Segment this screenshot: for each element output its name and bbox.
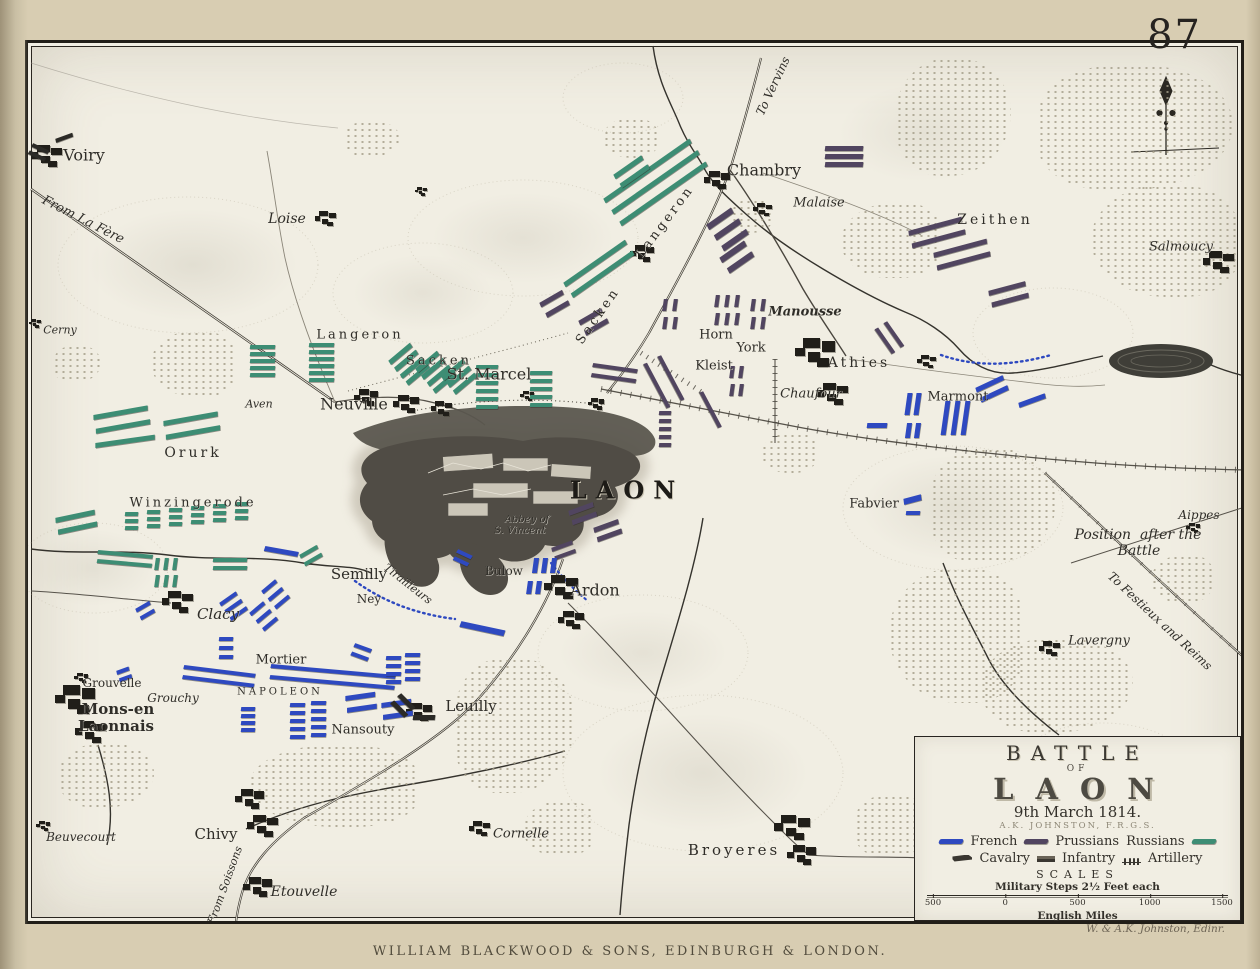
scale-tick: 500 <box>925 898 941 908</box>
lake <box>1109 344 1213 378</box>
map-title: BATTLE <box>915 742 1240 764</box>
title-cartouche: BATTLE OF LAON 9th March 1814. A.K. JOHN… <box>914 736 1241 921</box>
page-number: 87 <box>1138 12 1202 58</box>
laon-city <box>353 406 655 595</box>
army-color-legend: French Prussians Russians <box>915 834 1240 849</box>
map-title-name: LAON <box>915 774 1240 804</box>
unit-type-legend: Cavalry Infantry Artillery <box>915 851 1240 866</box>
scale-tick: 1000 <box>1139 898 1161 908</box>
map-sheet: { "page": { "number": "87", "imprint": "… <box>0 0 1260 969</box>
scale-bar-ticks: 500050010001500 <box>933 893 1222 909</box>
military-steps-label: Military Steps 2½ Feet each <box>915 881 1240 893</box>
prussian-color-swatch <box>1024 839 1050 844</box>
english-miles-label: English Miles <box>915 910 1240 922</box>
infantry-icon <box>1037 856 1055 862</box>
north-arrow-icon <box>1131 77 1219 155</box>
scale-tick: 500 <box>1069 898 1085 908</box>
french-legend-label: French <box>970 834 1017 849</box>
prussian-legend-label: Prussians <box>1055 834 1119 849</box>
scale-tick: 1500 <box>1211 898 1233 908</box>
scales-heading: SCALES <box>915 868 1240 881</box>
cavalry-legend-label: Cavalry <box>979 851 1030 866</box>
publisher-imprint: WILLIAM BLACKWOOD & SONS, EDINBURGH & LO… <box>0 944 1260 959</box>
russian-legend-label: Russians <box>1126 834 1184 849</box>
french-color-swatch <box>939 839 965 844</box>
cavalry-icon <box>952 855 972 863</box>
scale-tick: 0 <box>1003 898 1008 908</box>
engraver-credit: W. & A.K. Johnston, Edinr. <box>1040 923 1225 935</box>
map-date: 9th March 1814. <box>915 804 1240 821</box>
artillery-icon <box>1122 854 1141 863</box>
scale-bar-steps: 500050010001500 <box>925 893 1230 910</box>
artillery-legend-label: Artillery <box>1148 851 1203 866</box>
russian-color-swatch <box>1191 839 1217 844</box>
map-author: A.K. JOHNSTON, F.R.G.S. <box>915 821 1240 832</box>
map-frame: VoiryFrom La FèreCernyLoiseTo VervinsCha… <box>25 40 1244 924</box>
infantry-legend-label: Infantry <box>1062 851 1115 866</box>
